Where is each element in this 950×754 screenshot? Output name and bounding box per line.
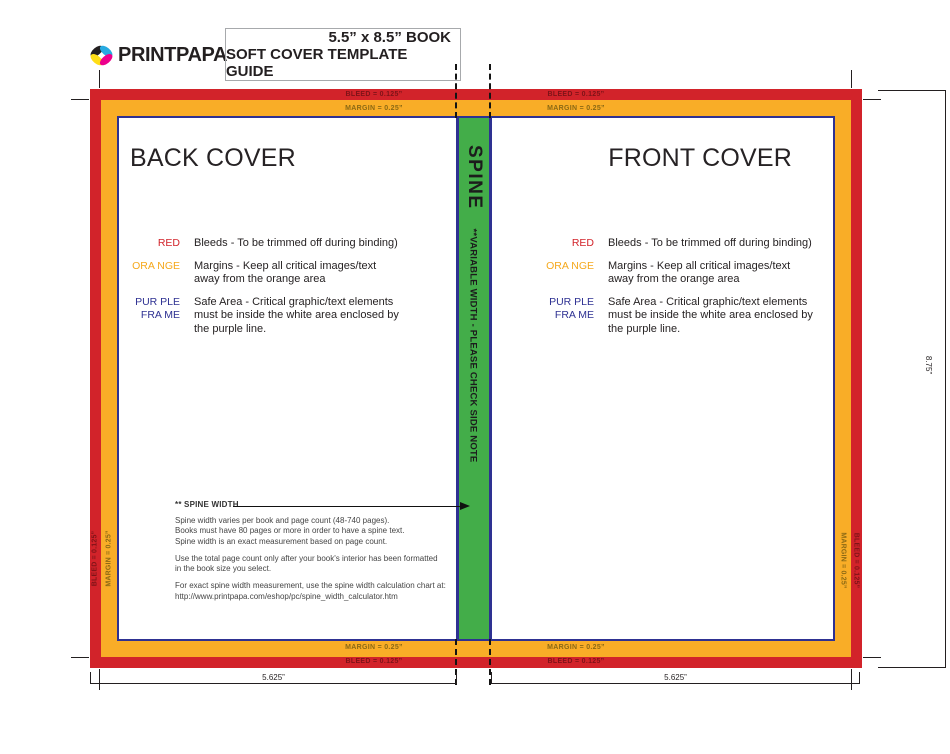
back-cover-width-bracket: 5.625”	[90, 672, 457, 684]
template-guide-title: SOFT COVER TEMPLATE GUIDE	[226, 46, 451, 80]
margin-band-label-left: MARGIN = 0.25”	[105, 527, 114, 591]
crop-mark	[851, 70, 852, 88]
legend-label-orange: ORA NGE	[544, 260, 594, 287]
bleed-band-label-left: BLEED = 0.125”	[91, 527, 100, 591]
crop-mark	[71, 657, 89, 658]
spine-title: SPINE	[464, 145, 484, 215]
note-paragraph: For exact spine width measurement, use t…	[175, 581, 485, 602]
legend-text-safe: Safe Area - Critical graphic/text elemen…	[608, 296, 813, 337]
bleed-band-label-right: BLEED = 0.125”	[852, 529, 861, 593]
bleed-band-label: BLEED = 0.125”	[309, 658, 439, 665]
spine-width-calculator-url: http://www.printpapa.com/eshop/pc/spine_…	[175, 592, 485, 602]
total-height-label: 8.75”	[923, 345, 933, 385]
legend-row-safe: PUR PLE FRA ME Safe Area - Critical grap…	[130, 296, 430, 337]
printpapa-logo: PRINTPAPA	[88, 42, 227, 69]
legend-text-margin: Margins - Keep all critical images/text …	[608, 260, 790, 287]
spine-fold-dashed-line	[489, 64, 491, 118]
crop-mark	[99, 70, 100, 88]
spine-pointer-line	[233, 506, 461, 507]
legend-front-cover: RED Bleeds - To be trimmed off during bi…	[544, 237, 844, 345]
legend-row-margin: ORA NGE Margins - Keep all critical imag…	[544, 260, 844, 287]
spine-width-note-title: ** SPINE WIDTH	[175, 500, 239, 509]
margin-band-label-right: MARGIN = 0.25”	[839, 529, 848, 593]
bleed-band-label: BLEED = 0.125”	[309, 91, 439, 98]
bleed-band-label: BLEED = 0.125”	[511, 658, 641, 665]
legend-text-margin: Margins - Keep all critical images/text …	[194, 260, 376, 287]
margin-band-label: MARGIN = 0.25”	[309, 644, 439, 651]
legend-label-red: RED	[130, 237, 180, 251]
legend-text-safe: Safe Area - Critical graphic/text elemen…	[194, 296, 399, 337]
legend-row-safe: PUR PLE FRA ME Safe Area - Critical grap…	[544, 296, 844, 337]
front-cover-title: FRONT COVER	[608, 144, 792, 173]
legend-row-bleed: RED Bleeds - To be trimmed off during bi…	[544, 237, 844, 251]
margin-band-label: MARGIN = 0.25”	[511, 644, 641, 651]
front-cover-width-label: 5.625”	[492, 673, 859, 682]
template-guide-page: PRINTPAPA 5.5” x 8.5” BOOK SOFT COVER TE…	[0, 0, 950, 754]
front-cover-width-bracket: 5.625”	[491, 672, 860, 684]
legend-label-orange: ORA NGE	[130, 260, 180, 287]
note-paragraph: Spine width varies per book and page cou…	[175, 516, 485, 547]
legend-back-cover: RED Bleeds - To be trimmed off during bi…	[130, 237, 430, 345]
book-size-title: 5.5” x 8.5” BOOK	[328, 29, 451, 46]
legend-label-purple: PUR PLE FRA ME	[544, 296, 594, 337]
legend-row-bleed: RED Bleeds - To be trimmed off during bi…	[130, 237, 430, 251]
legend-row-margin: ORA NGE Margins - Keep all critical imag…	[130, 260, 430, 287]
back-cover-title: BACK COVER	[130, 144, 296, 173]
back-cover-width-label: 5.625”	[91, 673, 456, 682]
spine-fold-dashed-line	[455, 64, 457, 118]
bleed-band-label: BLEED = 0.125”	[511, 91, 641, 98]
margin-band-label: MARGIN = 0.25”	[309, 105, 439, 112]
legend-label-purple: PUR PLE FRA ME	[130, 296, 180, 337]
spine-variable-width-note: **VARIABLE WIDTH - PLEASE CHECK SIDE NOT…	[468, 220, 479, 472]
legend-text-bleed: Bleeds - To be trimmed off during bindin…	[194, 237, 398, 251]
total-height-bracket	[878, 90, 946, 668]
spine-width-note-body: Spine width varies per book and page cou…	[175, 516, 485, 609]
printpapa-flower-icon	[88, 42, 115, 69]
title-box: 5.5” x 8.5” BOOK SOFT COVER TEMPLATE GUI…	[225, 28, 461, 81]
legend-label-red: RED	[544, 237, 594, 251]
crop-mark	[71, 99, 89, 100]
spine-pointer-arrowhead-icon	[460, 502, 470, 510]
logo-wordmark: PRINTPAPA	[118, 44, 227, 67]
legend-text-bleed: Bleeds - To be trimmed off during bindin…	[608, 237, 812, 251]
margin-band-label: MARGIN = 0.25”	[511, 105, 641, 112]
note-paragraph: Use the total page count only after your…	[175, 554, 485, 575]
